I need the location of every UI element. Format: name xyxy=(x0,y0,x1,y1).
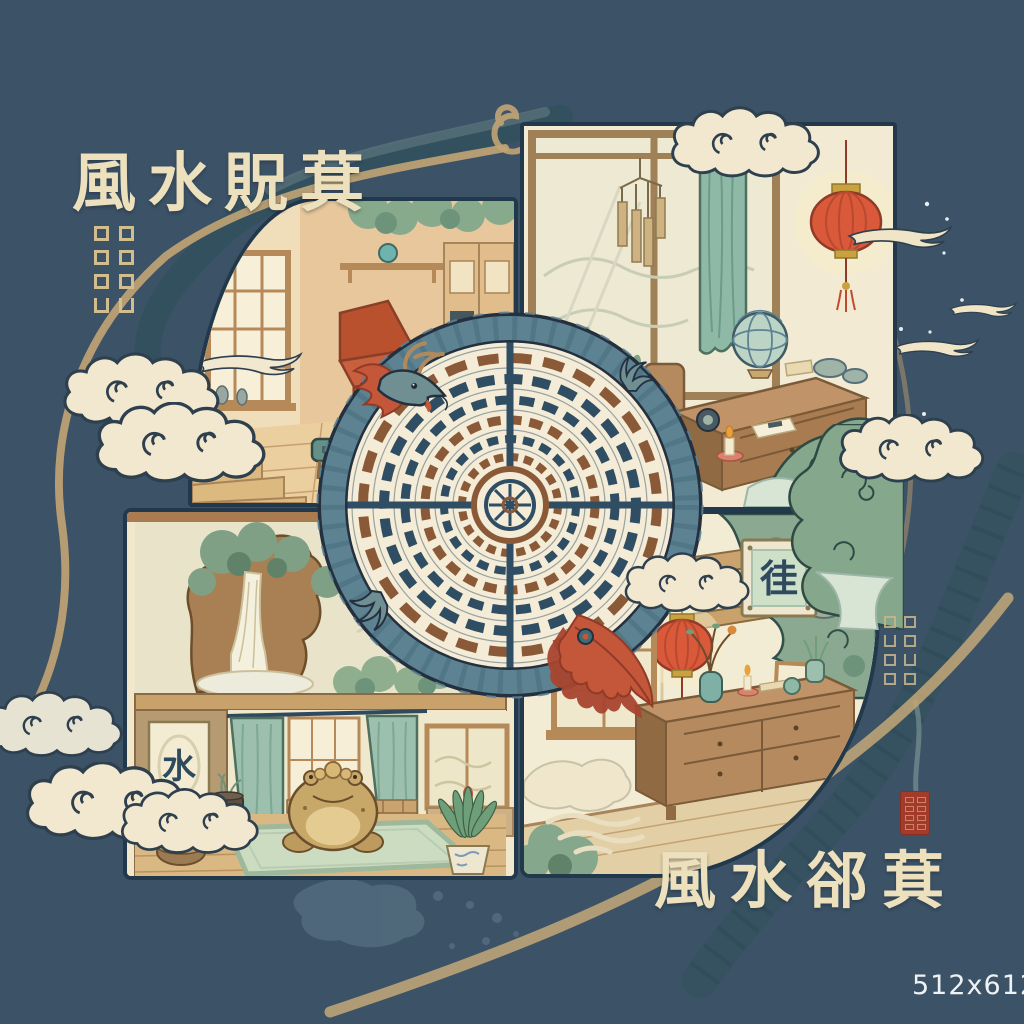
seal-script-column-right xyxy=(884,616,916,685)
cloud xyxy=(97,403,263,481)
red-seal-stamp xyxy=(901,792,929,834)
wisp-cloud xyxy=(849,227,951,247)
cloud xyxy=(841,415,983,481)
seal-script-column-left xyxy=(94,226,134,313)
title-top-left: 風水貺萁 xyxy=(72,132,376,224)
cloud xyxy=(122,789,257,852)
water-ripples xyxy=(548,815,642,852)
cloud xyxy=(673,108,819,176)
dimensions-watermark: 512x612 xyxy=(912,970,1024,1001)
title-bottom-right: 風水郤萁 xyxy=(654,830,958,920)
cloud-grey xyxy=(0,692,121,755)
artwork-canvas: 水 xyxy=(0,0,1024,1024)
wisp-cloud xyxy=(896,340,979,356)
cloud xyxy=(626,554,748,611)
wisp-cloud xyxy=(950,303,1016,316)
